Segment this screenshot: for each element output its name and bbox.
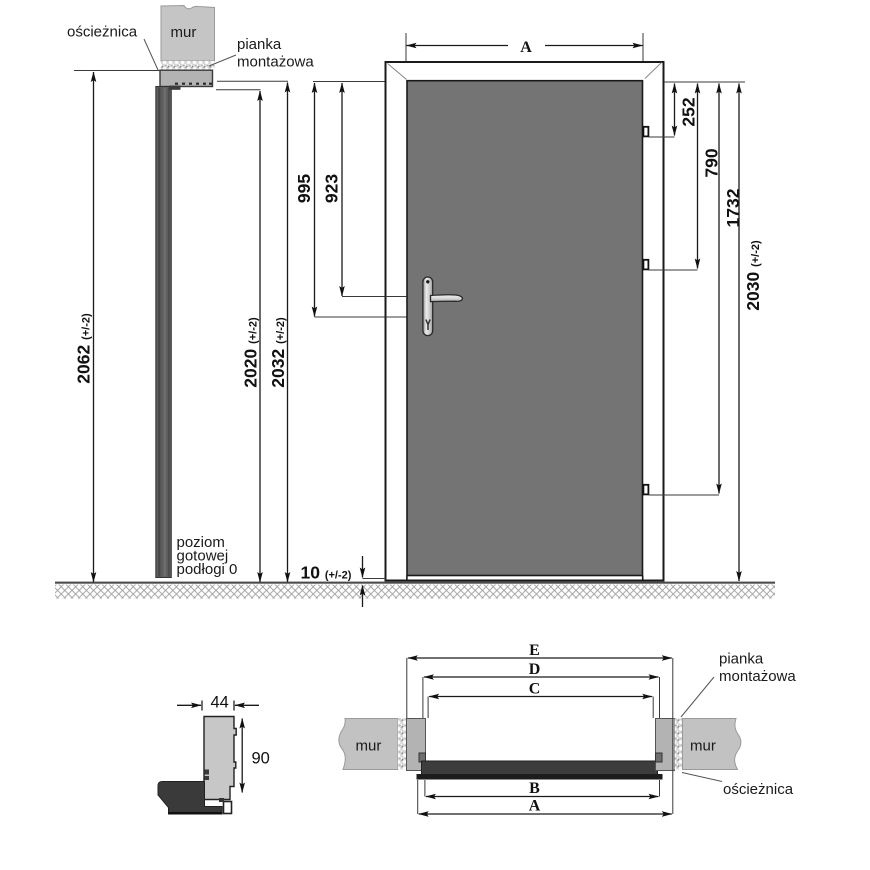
svg-text:montażowa: montażowa	[719, 668, 796, 685]
svg-text:B: B	[529, 780, 540, 797]
svg-text:252: 252	[679, 97, 699, 126]
svg-text:pianka: pianka	[719, 651, 764, 668]
svg-text:pianka: pianka	[237, 36, 282, 53]
svg-text:923: 923	[322, 174, 342, 203]
svg-text:A: A	[529, 798, 541, 815]
svg-text:montażowa: montażowa	[237, 54, 314, 71]
svg-text:mur: mur	[171, 24, 197, 41]
svg-text:E: E	[529, 642, 540, 659]
svg-text:A: A	[520, 39, 532, 56]
svg-text:mur: mur	[690, 738, 716, 755]
svg-text:ościeżnica: ościeżnica	[723, 781, 794, 798]
svg-text:90: 90	[252, 750, 270, 768]
svg-text:podłogi 0: podłogi 0	[177, 561, 238, 578]
svg-text:44: 44	[211, 693, 229, 711]
svg-text:C: C	[529, 681, 541, 698]
svg-text:D: D	[529, 661, 541, 678]
svg-text:ościeżnica: ościeżnica	[67, 24, 138, 41]
svg-text:mur: mur	[356, 738, 382, 755]
svg-text:995: 995	[294, 174, 314, 203]
svg-text:1732: 1732	[723, 188, 743, 227]
